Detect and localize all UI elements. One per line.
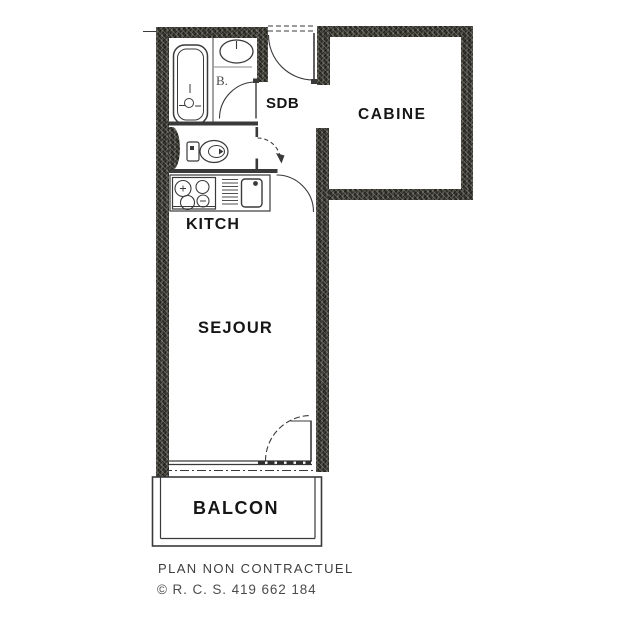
toilet-icon bbox=[187, 141, 228, 163]
room-label-kitch: KITCH bbox=[186, 217, 240, 233]
sejour-window bbox=[163, 461, 318, 471]
rcs-registration: © R. C. S. 419 662 184 bbox=[157, 583, 317, 597]
door-swing-arrow bbox=[276, 153, 285, 164]
kitchen-sink-icon bbox=[242, 179, 263, 207]
entrance-door bbox=[268, 26, 317, 84]
plan-disclaimer: PLAN NON CONTRACTUEL bbox=[158, 562, 354, 575]
balcony-door bbox=[266, 416, 312, 462]
thin-walls bbox=[143, 32, 278, 174]
hall-sejour-door bbox=[277, 175, 314, 212]
bath-mark-label: B. bbox=[216, 74, 228, 87]
wc-door-swing bbox=[258, 138, 281, 161]
bathtub-icon bbox=[174, 45, 208, 124]
plan-linework bbox=[0, 0, 640, 640]
wc-door bbox=[258, 138, 285, 164]
hall-sejour-door-swing bbox=[277, 175, 314, 212]
room-label-cabine: CABINE bbox=[358, 107, 426, 123]
room-label-balcon: BALCON bbox=[193, 499, 279, 517]
room-label-sdb: SDB bbox=[266, 96, 299, 111]
kitchen-counter bbox=[170, 175, 270, 211]
floor-plan: B. SDB CABINE KITCH SEJOUR BALCON PLAN N… bbox=[0, 0, 640, 640]
room-label-sejour: SEJOUR bbox=[198, 320, 273, 337]
balcony-door-swing bbox=[266, 416, 312, 462]
dish-rack-icon bbox=[222, 180, 238, 205]
washbasin-icon bbox=[220, 40, 253, 63]
stove-icon bbox=[173, 178, 216, 210]
entrance-door-swing bbox=[269, 35, 314, 80]
wall-wc-kitchen bbox=[169, 169, 278, 173]
